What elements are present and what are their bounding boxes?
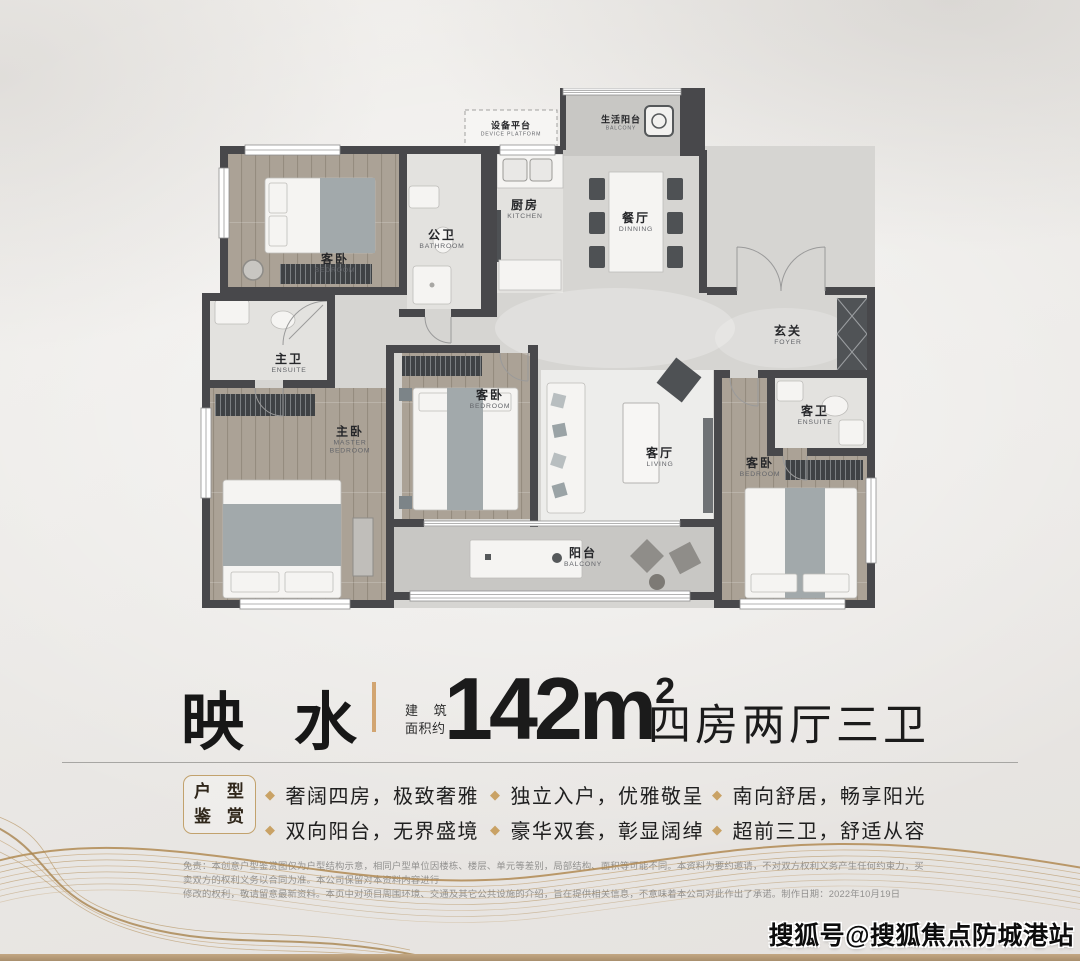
room-label-master-bedroom: 主卧 MASTER BEDROOM: [320, 425, 380, 454]
room-label-balcony: 阳台 BALCONY: [564, 547, 602, 569]
layout-description: 四房两厅三卫: [648, 691, 930, 753]
room-label-guest-ensuite: 客卫 ENSUITE: [797, 405, 832, 427]
room-label-bedroom-right: 客卧 BEDROOM: [740, 457, 781, 479]
room-label-device-platform: 设备平台 DEVICE PLATFORM: [481, 122, 542, 139]
room-label-bedroom-middle: 客卧 BEDROOM: [470, 389, 511, 411]
gold-divider: [372, 682, 376, 732]
room-label-bedroom-topleft: 客卧 BEDROOM: [315, 253, 356, 275]
divider-line: [62, 762, 1018, 763]
room-label-kitchen: 厨房 KITCHEN: [507, 199, 542, 221]
room-label-living: 客厅 LIVING: [646, 447, 674, 469]
floor-plan: 设备平台 DEVICE PLATFORM 生活阳台 BALCONY 客卧 BED…: [185, 88, 885, 650]
diamond-bullet-icon: ◆: [265, 788, 277, 801]
room-label-master-ensuite: 主卫 ENSUITE: [271, 353, 306, 375]
area-value: 142m2: [444, 658, 675, 760]
diamond-bullet-icon: ◆: [490, 788, 502, 801]
diamond-bullet-icon: ◆: [712, 788, 724, 801]
feature-item-5: ◆南向舒居，畅享阳光: [712, 780, 926, 809]
watermark: 搜狐号@搜狐焦点防城港站: [769, 916, 1074, 952]
room-label-bathroom: 公卫 BATHROOM: [419, 229, 464, 251]
feature-item-3: ◆独立入户，优雅敬呈: [490, 780, 704, 809]
bottom-bar: [0, 954, 1080, 961]
room-label-life-balcony: 生活阳台 BALCONY: [601, 116, 641, 133]
project-name: 映 水: [181, 672, 371, 763]
room-label-dining: 餐厅 DINNING: [619, 212, 653, 234]
poster: 设备平台 DEVICE PLATFORM 生活阳台 BALCONY 客卧 BED…: [0, 0, 1080, 961]
room-label-foyer: 玄关 FOYER: [774, 325, 802, 347]
feature-item-1: ◆奢阔四房，极致奢雅: [265, 780, 479, 809]
